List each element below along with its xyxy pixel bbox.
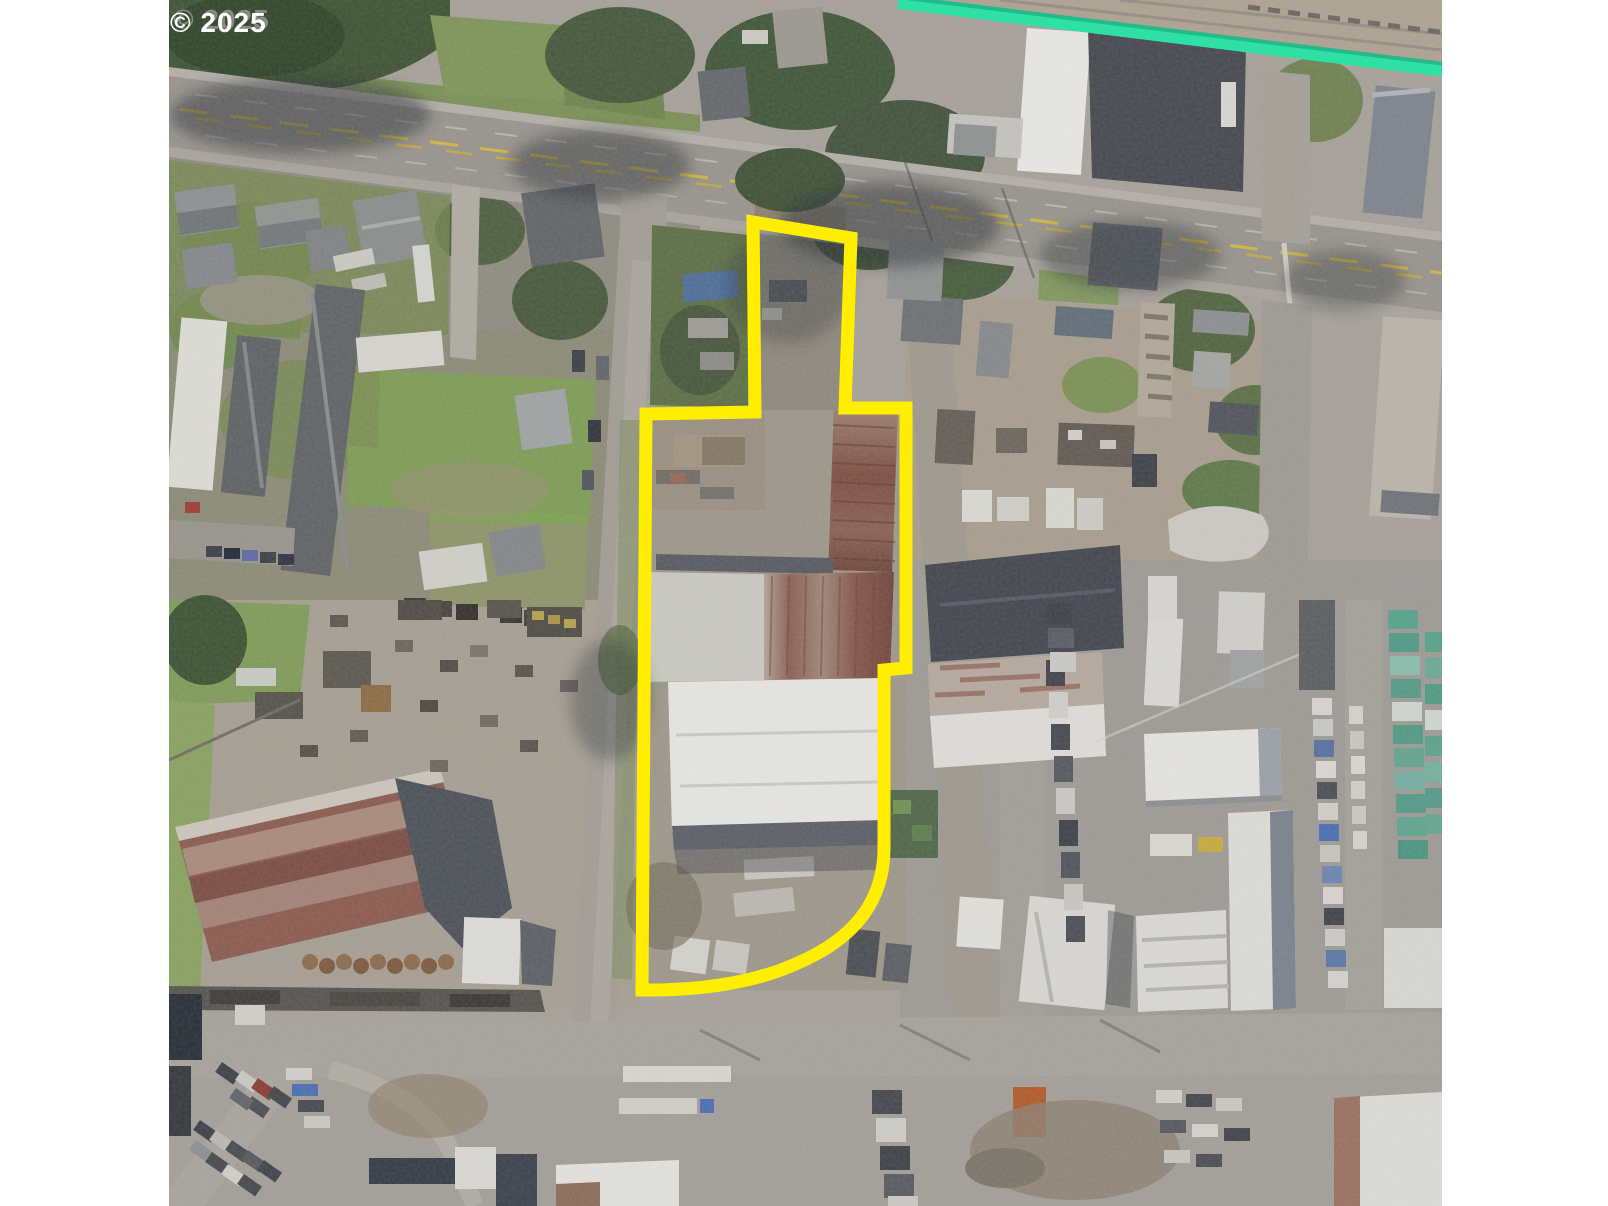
- svg-text:© 2025: © 2025: [170, 7, 267, 38]
